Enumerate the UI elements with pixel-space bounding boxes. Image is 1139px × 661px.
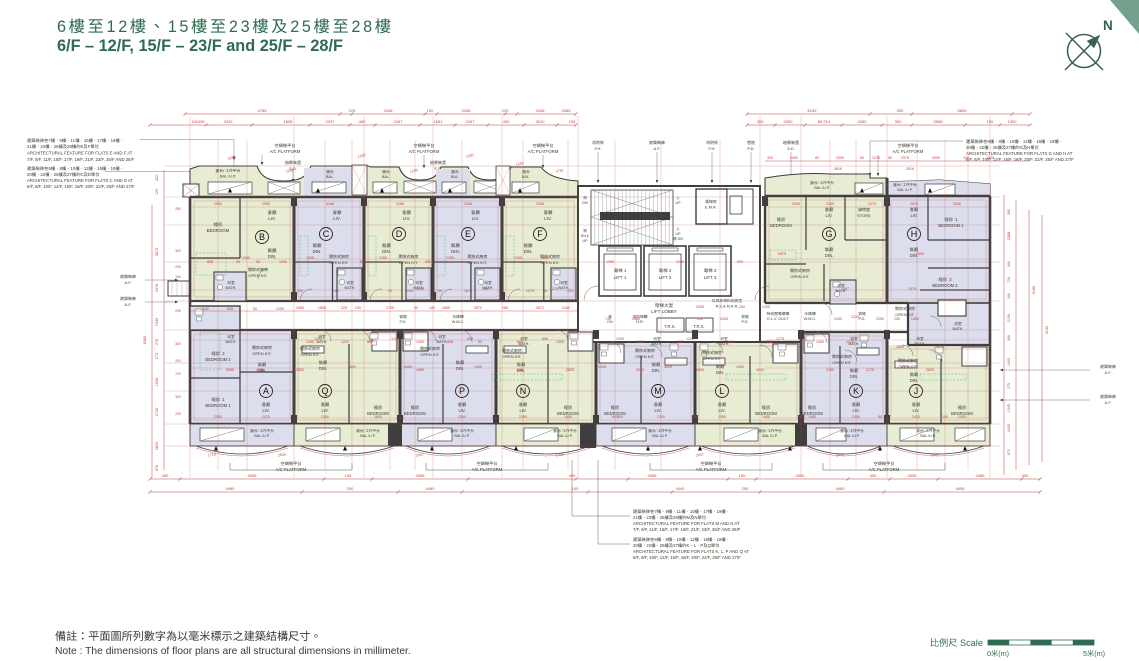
svg-text:300: 300 [757,119,764,124]
svg-text:/: / [847,429,849,433]
svg-text:BAL./U.P.: BAL./U.P. [844,434,859,438]
svg-text:1467: 1467 [482,287,490,291]
svg-text:4355: 4355 [908,473,918,478]
svg-text:600: 600 [542,256,548,260]
svg-text:A.F.: A.F. [125,280,132,285]
svg-text:6135: 6135 [808,108,818,113]
svg-text:BATH.: BATH. [953,327,964,331]
svg-text:20: 20 [966,145,971,150]
svg-text:OPEN KIT.: OPEN KIT. [832,360,851,365]
svg-text:18: 18 [1050,139,1055,144]
svg-text:273: 273 [155,353,159,359]
svg-text:2825: 2825 [566,368,574,372]
svg-text:UP: UP [676,201,682,205]
svg-text:1030: 1030 [155,318,159,326]
svg-text:R.S.& M.R.R.: R.S.& M.R.R. [716,304,739,308]
svg-text:DIN.: DIN. [319,366,327,371]
svg-text:1200: 1200 [762,305,770,309]
svg-text:1850: 1850 [896,345,904,349]
svg-text:4480: 4480 [426,486,436,491]
svg-text:3168: 3168 [536,202,544,206]
svg-text:2425: 2425 [912,415,920,419]
svg-text:160: 160 [175,275,181,279]
svg-text:A/C PLATFORM: A/C PLATFORM [472,467,503,472]
svg-text:250: 250 [617,415,623,419]
svg-text:1160: 1160 [201,307,209,311]
svg-text:1050: 1050 [876,317,884,321]
svg-text:6166: 6166 [1032,286,1036,294]
svg-text:322: 322 [155,175,159,181]
svg-text:LIV.: LIV. [544,216,551,221]
svg-text:BEDROOM: BEDROOM [404,411,426,416]
svg-text:OPEN KIT.: OPEN KIT. [895,312,914,317]
svg-text:25: 25 [290,18,313,36]
svg-text:1045: 1045 [1007,404,1011,412]
svg-text:LIV.: LIV. [825,213,832,218]
svg-text:100: 100 [942,415,948,419]
svg-text:BEDROOM 1: BEDROOM 1 [938,223,964,228]
svg-text:2050: 2050 [790,156,798,160]
svg-text:300: 300 [895,119,902,124]
svg-text:720: 720 [175,372,181,376]
svg-text:2872: 2872 [536,306,544,310]
svg-text:50: 50 [414,306,418,310]
svg-text:3168: 3168 [464,202,472,206]
svg-text:2575: 2575 [901,156,909,160]
svg-text:1: 1 [220,397,225,402]
svg-text:650: 650 [767,340,773,344]
svg-text:2350: 2350 [321,415,329,419]
svg-text:A/C PLATFORM: A/C PLATFORM [696,467,727,472]
svg-text:1450: 1450 [736,365,744,369]
svg-text:4305: 4305 [720,317,728,321]
svg-text:2350: 2350 [519,415,527,419]
svg-text:1075: 1075 [550,287,558,291]
svg-text:15: 15 [690,509,695,514]
svg-text:27: 27 [67,172,72,177]
svg-text:OPEN KIT.: OPEN KIT. [399,260,418,265]
svg-text:16: 16 [1036,139,1041,144]
svg-text:16: 16 [703,537,708,542]
svg-text:1220: 1220 [391,337,399,341]
svg-text:1800: 1800 [762,415,770,419]
svg-text:1050: 1050 [616,337,624,341]
svg-text:1467: 1467 [841,287,849,291]
svg-text:6/F, 8/F, 10/F, 12/F, 16/F, 18: 6/F, 8/F, 10/F, 12/F, 16/F, 18/F, 20/F, … [633,555,741,560]
svg-text:1285: 1285 [606,260,614,264]
svg-text:ARCHITECTURAL FEATURE FOR FLAT: ARCHITECTURAL FEATURE FOR FLATS E AND F … [27,151,133,156]
svg-text:D: D [396,229,403,239]
svg-text:15: 15 [168,18,191,36]
svg-text:BEDROOM: BEDROOM [770,223,792,228]
svg-text:25: 25 [993,145,998,150]
svg-text:N: N [694,515,697,520]
svg-text:250: 250 [897,108,904,113]
svg-text:OPEN KIT.: OPEN KIT. [790,274,809,279]
svg-text:2825: 2825 [155,442,159,450]
svg-text:285: 285 [502,306,508,310]
svg-text:E.M.R.: E.M.R. [705,205,717,210]
svg-text:4985: 4985 [226,486,236,491]
svg-text:15: 15 [84,138,89,143]
svg-text:OPEN KIT.: OPEN KIT. [540,260,559,265]
svg-text:80: 80 [815,156,819,160]
svg-text:BAL./U.P.: BAL./U.P. [920,434,935,438]
svg-text:678: 678 [155,465,159,471]
svg-text:BAL./U.P.: BAL./U.P. [762,434,777,438]
svg-text:/: / [560,429,562,433]
svg-text:3168: 3168 [396,202,404,206]
svg-text:275: 275 [155,339,159,345]
svg-text:BATH.: BATH. [437,340,448,344]
svg-text:DIN.: DIN. [313,249,322,254]
svg-text:3433: 3433 [224,119,234,124]
svg-text:1800: 1800 [374,415,382,419]
svg-text:1275: 1275 [868,202,876,206]
svg-text:Note : The dimensions of floor: Note : The dimensions of floor plans are… [55,646,411,657]
svg-text:20: 20 [633,543,638,548]
svg-text:3616: 3616 [834,167,842,171]
svg-text:DIN.: DIN. [652,368,660,373]
svg-text:ARCHITECTURAL FEATURE FOR FLAT: ARCHITECTURAL FEATURE FOR FLATS K, L, P … [633,549,749,554]
svg-text:BAL.: BAL. [382,175,390,179]
svg-text:/: / [900,183,902,187]
svg-text:490: 490 [569,473,576,478]
svg-text:OPEN KIT.: OPEN KIT. [300,352,319,357]
svg-text:250: 250 [697,317,703,321]
svg-text:1036: 1036 [155,378,159,386]
svg-text:D: D [88,172,91,177]
svg-text:LIV.: LIV. [718,408,725,413]
svg-text:3010: 3010 [536,119,546,124]
svg-text:3598: 3598 [934,119,944,124]
svg-text:50: 50 [888,156,892,160]
svg-text:400: 400 [503,119,510,124]
svg-text:2350: 2350 [826,202,834,206]
svg-text:LIV.: LIV. [912,408,919,413]
svg-text:1681: 1681 [434,119,444,124]
svg-text:2355: 2355 [262,202,270,206]
svg-text:100: 100 [427,108,434,113]
svg-text:M: M [687,515,691,520]
svg-text:C: C [81,172,84,177]
svg-text:1265: 1265 [446,256,454,260]
svg-text:P: P [700,543,703,548]
svg-text:1220: 1220 [676,340,684,344]
svg-text:BATH.: BATH. [226,286,237,290]
svg-text:2: 2 [947,277,952,282]
svg-text:4005: 4005 [756,368,764,372]
svg-text:280: 280 [175,207,181,211]
svg-text:11: 11 [677,509,682,514]
svg-text:280: 280 [1007,209,1011,215]
svg-text:BEDROOM 1: BEDROOM 1 [205,403,231,408]
svg-text:28: 28 [673,515,678,520]
svg-text:BAL./U.P.: BAL./U.P. [557,434,572,438]
svg-text:1000: 1000 [279,260,287,264]
svg-text:25: 25 [54,172,59,177]
svg-text:P.D.: P.D. [742,320,749,324]
svg-text:275: 275 [1007,383,1011,389]
svg-text:200: 200 [175,265,181,269]
svg-text:1188: 1188 [416,287,424,291]
svg-text:1800: 1800 [296,306,304,310]
svg-text:150: 150 [569,119,576,124]
svg-text:808: 808 [447,340,453,344]
svg-text:250: 250 [742,486,749,491]
svg-text:450: 450 [1022,473,1029,478]
svg-text:LIFT 2: LIFT 2 [659,275,672,280]
svg-text:ARCHITECTURAL FEATURE FOR FLAT: ARCHITECTURAL FEATURE FOR FLATS M AND N … [633,521,740,526]
svg-text:ARCHITECTURAL FEATURE FOR FLAT: ARCHITECTURAL FEATURE FOR FLATS G AND H … [966,151,1073,156]
svg-text:225: 225 [502,108,509,113]
svg-text:300: 300 [175,395,181,399]
svg-text:BAL./U.P.: BAL./U.P. [220,174,236,178]
svg-text:1220: 1220 [686,337,694,341]
svg-text:DIN.: DIN. [268,254,277,259]
svg-text:LIV.: LIV. [262,408,269,413]
svg-text:BAL./U.P.: BAL./U.P. [360,434,375,438]
svg-text:A.F.: A.F. [125,302,132,307]
svg-text:LIFT LOBBY: LIFT LOBBY [651,309,677,314]
svg-text:1265: 1265 [379,256,387,260]
svg-text:3168: 3168 [462,108,472,113]
svg-text:DN: DN [677,237,684,241]
svg-text:3460: 3460 [858,119,868,124]
svg-text:4355: 4355 [796,473,806,478]
svg-text:2050: 2050 [214,415,222,419]
svg-text:A.F.: A.F. [1105,400,1112,405]
svg-text:300: 300 [175,342,181,346]
svg-text:E: E [81,144,84,149]
svg-text:1050: 1050 [816,340,824,344]
svg-text:16: 16 [97,166,102,171]
svg-text:UP: UP [583,239,589,243]
svg-text:2350: 2350 [718,415,726,419]
svg-text:2297: 2297 [394,119,404,124]
svg-text:4130: 4130 [901,365,909,369]
svg-text:808: 808 [227,307,233,311]
svg-text:4440: 4440 [676,486,686,491]
svg-text:28: 28 [67,144,72,149]
svg-text:2175: 2175 [866,368,874,372]
svg-text:19: 19 [717,509,722,514]
svg-text:3385: 3385 [562,108,572,113]
svg-text:1308: 1308 [598,365,606,369]
svg-text:1658: 1658 [284,119,294,124]
svg-text:4378: 4378 [155,284,159,292]
svg-text:A/C PLATFORM: A/C PLATFORM [270,149,301,154]
svg-text:LIV.: LIV. [268,216,275,221]
svg-text:1000: 1000 [242,256,250,260]
svg-text:BAL.: BAL. [326,175,334,179]
svg-text:180: 180 [429,306,435,310]
svg-text:1265: 1265 [306,256,314,260]
svg-text:P.D.: P.D. [859,317,866,321]
svg-text:LIFT 1: LIFT 1 [614,275,627,280]
svg-text:F.H.: F.H. [708,146,715,151]
svg-text:21: 21 [27,144,32,149]
svg-text:OPEN KIT.: OPEN KIT. [252,351,271,356]
svg-text:125: 125 [155,189,159,195]
svg-text:4480: 4480 [632,317,640,321]
svg-text:808: 808 [542,337,548,341]
svg-text:2625: 2625 [926,368,934,372]
svg-text:225: 225 [349,108,356,113]
svg-text:1450: 1450 [726,340,734,344]
svg-text:4355: 4355 [648,473,658,478]
svg-text:250: 250 [739,305,745,309]
svg-text:1300: 1300 [1008,119,1018,124]
svg-text:100: 100 [355,306,361,310]
svg-text:T.R.S.: T.R.S. [693,324,704,329]
svg-text:28: 28 [351,18,374,36]
svg-text:/: / [363,429,365,433]
svg-text:3168: 3168 [326,202,334,206]
svg-text:1450: 1450 [474,365,482,369]
svg-text:2350: 2350 [657,415,665,419]
svg-text:2050: 2050 [916,252,924,256]
svg-text:4005: 4005 [664,365,672,369]
svg-text:10: 10 [1010,139,1015,144]
svg-text:2050: 2050 [932,156,940,160]
svg-text:6: 6 [57,18,69,36]
svg-text:17: 17 [703,509,708,514]
svg-text:2672: 2672 [474,306,482,310]
svg-text:OPEN KIT.: OPEN KIT. [502,354,521,359]
svg-text:P.D.: P.D. [400,320,407,324]
svg-text:23: 23 [646,515,651,520]
svg-text:80: 80 [860,156,864,160]
svg-text:58: 58 [438,289,442,293]
svg-text:1050: 1050 [636,340,644,344]
svg-text:450: 450 [162,473,169,478]
svg-text:/: / [257,429,259,433]
svg-text:BAL./U.P.: BAL./U.P. [254,434,269,438]
svg-text:5805: 5805 [958,108,968,113]
svg-text:0: 0 [987,649,991,658]
svg-text:23: 23 [229,18,252,36]
svg-text:95: 95 [236,260,240,264]
svg-text:100: 100 [517,368,523,372]
svg-text:27: 27 [673,543,678,548]
svg-text:OPEN KIT.: OPEN KIT. [702,356,721,361]
svg-text:2350: 2350 [852,415,860,419]
svg-text:50: 50 [253,307,257,311]
svg-text:480: 480 [359,119,366,124]
svg-text:1255: 1255 [306,340,314,344]
svg-text:10: 10 [677,537,682,542]
svg-text:3168: 3168 [536,108,546,113]
svg-text:OPEN KIT.: OPEN KIT. [420,352,439,357]
svg-text:1255: 1255 [276,307,284,311]
svg-text:/: / [223,169,225,173]
svg-text:A/C PLATFORM: A/C PLATFORM [528,149,559,154]
svg-text:DIN.: DIN. [825,253,833,258]
svg-text:3855: 3855 [696,368,704,372]
svg-text:C: C [323,229,330,239]
svg-text:A/C PLATFORM: A/C PLATFORM [409,149,440,154]
svg-text:6305: 6305 [226,368,234,372]
svg-text:E: E [465,229,471,239]
svg-text:N: N [1103,18,1113,33]
svg-text:1220: 1220 [846,340,854,344]
svg-text:150: 150 [739,473,746,478]
svg-text:19: 19 [111,138,116,143]
svg-text:2475: 2475 [262,415,270,419]
svg-text:325: 325 [341,306,347,310]
svg-text:17: 17 [97,138,102,143]
svg-text:A/C PLATFORM: A/C PLATFORM [869,467,900,472]
svg-text:1580: 1580 [808,415,816,419]
svg-text:4455: 4455 [248,473,258,478]
svg-text:250: 250 [347,486,354,491]
svg-text:150: 150 [297,289,303,293]
svg-text:10: 10 [71,166,76,171]
svg-text:4480: 4480 [404,365,412,369]
svg-text:1050: 1050 [416,340,424,344]
svg-text:200: 200 [1007,293,1011,299]
svg-text:2575: 2575 [778,252,786,256]
svg-text:2050: 2050 [958,415,966,419]
svg-text:2050: 2050 [953,202,961,206]
svg-text:26: 26 [660,515,665,520]
svg-text:Scale: Scale [957,638,983,648]
svg-text:4355: 4355 [416,473,426,478]
svg-text:12: 12 [690,537,695,542]
svg-text:STORE: STORE [857,213,871,218]
svg-text:21: 21 [633,515,638,520]
svg-text:6365: 6365 [143,336,147,344]
svg-text:S.D.: S.D. [787,146,795,151]
svg-text:720: 720 [1007,277,1011,283]
svg-text:W.M.C.: W.M.C. [804,317,816,321]
svg-text:4130: 4130 [826,368,834,372]
svg-text:/: / [817,181,819,185]
svg-text:LIV.: LIV. [910,213,917,218]
svg-text:(m): (m) [1094,649,1105,658]
svg-text:1188: 1188 [331,289,339,293]
svg-text:3516: 3516 [906,167,914,171]
svg-text:1220: 1220 [341,340,349,344]
svg-text:26: 26 [54,144,59,149]
svg-text:LIV.: LIV. [472,216,479,221]
svg-text:T.R.S.: T.R.S. [664,324,675,329]
svg-text:18: 18 [111,166,116,171]
svg-text:E.L.V. DUCT: E.L.V. DUCT [767,317,789,321]
svg-text:BEDROOM 2: BEDROOM 2 [205,357,231,362]
svg-text:6/F, 8/F, 10/F, 12/F, 16/F, 18: 6/F, 8/F, 10/F, 12/F, 16/F, 18/F, 20/F, … [966,157,1074,162]
svg-text:1275: 1275 [936,345,944,349]
svg-text:11: 11 [71,138,76,143]
svg-text:BATH.: BATH. [915,342,926,346]
svg-text:BAL./U.P.: BAL./U.P. [814,186,829,190]
svg-text:4480: 4480 [416,368,424,372]
svg-text:2050: 2050 [784,119,794,124]
svg-text:1265: 1265 [676,260,684,264]
svg-text:3850: 3850 [296,368,304,372]
svg-text:425: 425 [567,289,573,293]
svg-text:/: / [765,429,767,433]
svg-text:250: 250 [894,317,900,321]
svg-text:5: 5 [1083,649,1087,658]
svg-text:1: 1 [953,217,958,222]
svg-text:1220: 1220 [851,315,859,319]
svg-text:F.H.: F.H. [594,146,601,151]
svg-text:4430: 4430 [1007,424,1011,432]
svg-text:2: 2 [220,351,225,356]
svg-text:12: 12 [107,18,130,36]
